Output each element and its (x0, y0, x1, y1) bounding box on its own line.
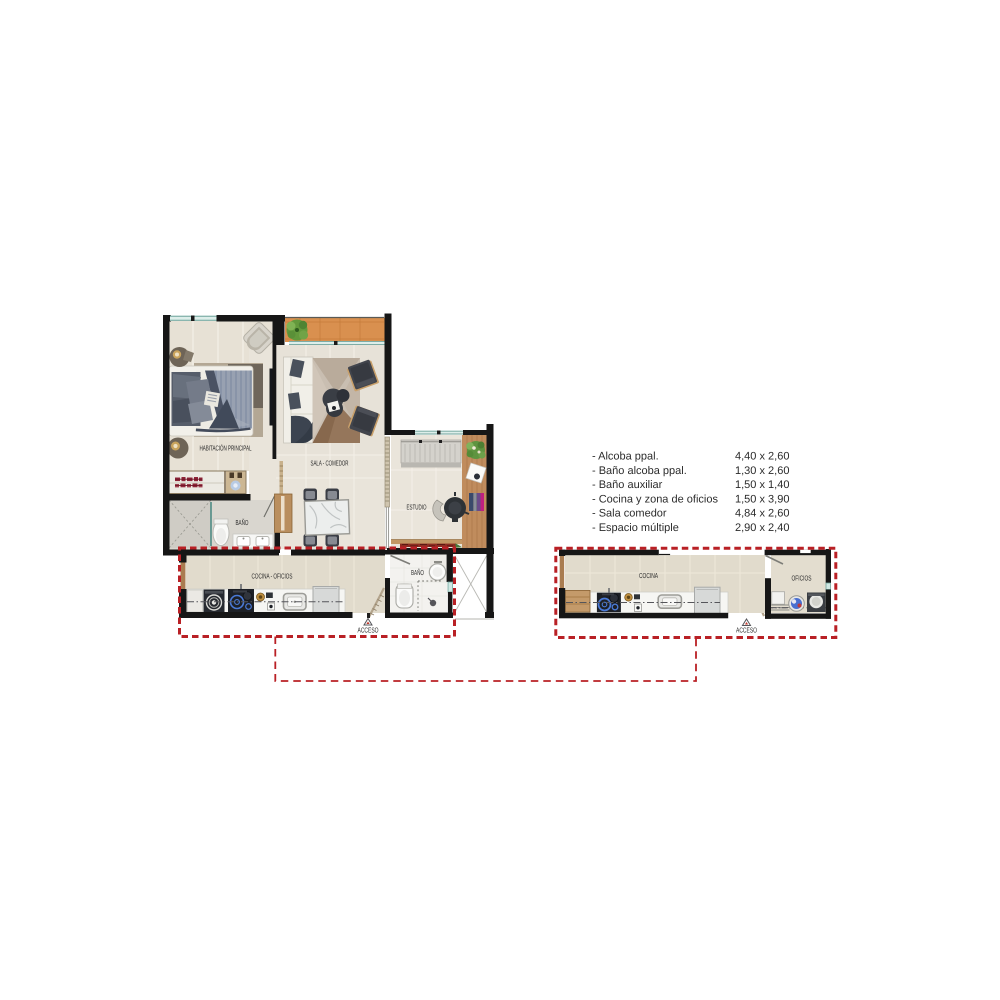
svg-text:2,90 x 2,40: 2,90 x 2,40 (735, 522, 789, 534)
svg-text:BAÑO: BAÑO (236, 518, 249, 527)
svg-text:1,50 x 3,90: 1,50 x 3,90 (735, 493, 789, 505)
svg-text:4,84 x 2,60: 4,84 x 2,60 (735, 508, 789, 520)
svg-text:BAÑO: BAÑO (411, 568, 424, 577)
svg-text:- Sala comedor: - Sala comedor (592, 508, 667, 520)
svg-text:HABITACIÓN PRINCIPAL: HABITACIÓN PRINCIPAL (200, 444, 252, 453)
svg-text:- Baño alcoba ppal.: - Baño alcoba ppal. (592, 465, 687, 477)
svg-text:- Baño auxiliar: - Baño auxiliar (592, 479, 663, 491)
svg-text:1,30 x 2,60: 1,30 x 2,60 (735, 465, 789, 477)
svg-text:COCINA: COCINA (639, 571, 658, 580)
svg-text:ACCESO: ACCESO (736, 626, 757, 635)
svg-text:- Espacio múltiple: - Espacio múltiple (592, 522, 679, 534)
svg-text:ESTUDIO: ESTUDIO (407, 503, 427, 512)
svg-text:1,50 x 1,40: 1,50 x 1,40 (735, 479, 789, 491)
svg-text:SALA - COMEDOR: SALA - COMEDOR (311, 459, 349, 468)
svg-text:4,40 x 2,60: 4,40 x 2,60 (735, 451, 789, 463)
svg-text:OFICIOS: OFICIOS (792, 574, 812, 583)
svg-text:- Cocina y zona de oficios: - Cocina y zona de oficios (592, 493, 718, 505)
svg-text:ACCESO: ACCESO (358, 626, 379, 635)
svg-text:COCINA - OFICIOS: COCINA - OFICIOS (252, 572, 293, 581)
svg-text:- Alcoba ppal.: - Alcoba ppal. (592, 451, 659, 463)
